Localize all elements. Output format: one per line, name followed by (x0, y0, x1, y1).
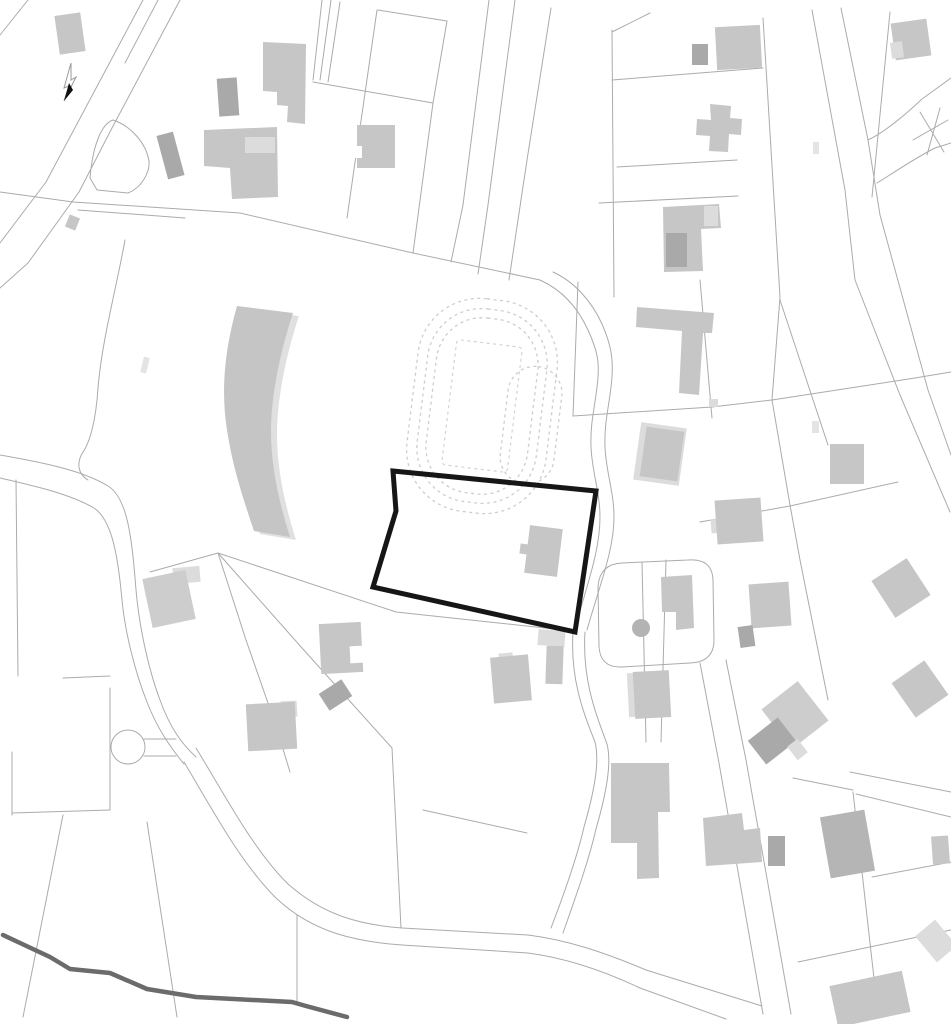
building-footprint (354, 146, 362, 158)
building-footprint (892, 660, 949, 717)
building-footprint (156, 132, 184, 180)
building-footprint (709, 399, 718, 407)
building-footprint (537, 629, 565, 647)
site-boundary-outline (373, 471, 596, 632)
parcel-and-road-lines (0, 0, 951, 1019)
building-footprint (749, 582, 792, 629)
north-arrow-icon (64, 63, 76, 101)
building-footprint (490, 654, 532, 703)
building-footprint (545, 646, 563, 685)
pond-outline (90, 120, 149, 193)
building-footprint (692, 44, 708, 65)
roundabout-dot (632, 619, 650, 637)
building-footprints (54, 12, 951, 1024)
building-footprint (890, 41, 904, 59)
building-footprint (703, 813, 762, 866)
building-footprint (820, 810, 875, 879)
building-footprint (768, 836, 785, 866)
building-footprint (704, 206, 718, 226)
site-plan-map (0, 0, 951, 1024)
building-footprint (829, 971, 910, 1024)
building-footprint (812, 421, 819, 433)
building-footprint (519, 544, 528, 555)
building-footprint (319, 679, 353, 710)
building-footprint (813, 142, 819, 154)
building-footprint (263, 42, 306, 124)
building-footprint (738, 625, 756, 648)
building-footprint (140, 357, 150, 374)
building-footprint (715, 497, 764, 544)
cadastral-plan-canvas (0, 0, 951, 1024)
building-footprint (246, 702, 297, 752)
building-footprint (640, 427, 685, 482)
building-footprint (915, 920, 951, 963)
building-footprint (715, 25, 762, 70)
building-footprint (611, 763, 670, 879)
building-footprint (871, 558, 930, 618)
building-footprint (524, 525, 563, 577)
culdesac-circle (111, 730, 176, 764)
building-footprint (633, 670, 671, 719)
building-footprint (350, 646, 364, 664)
building-footprint (830, 444, 864, 484)
building-footprint (54, 12, 85, 54)
building-footprint (696, 104, 742, 152)
building-footprint (636, 307, 714, 395)
building-footprint (666, 233, 687, 267)
building-footprint (661, 575, 694, 630)
building-footprint (931, 835, 950, 864)
building-footprint (217, 77, 240, 116)
curved-building-band (224, 306, 299, 540)
building-footprint (357, 125, 395, 168)
building-footprint (245, 137, 275, 153)
building-footprint (65, 214, 80, 230)
